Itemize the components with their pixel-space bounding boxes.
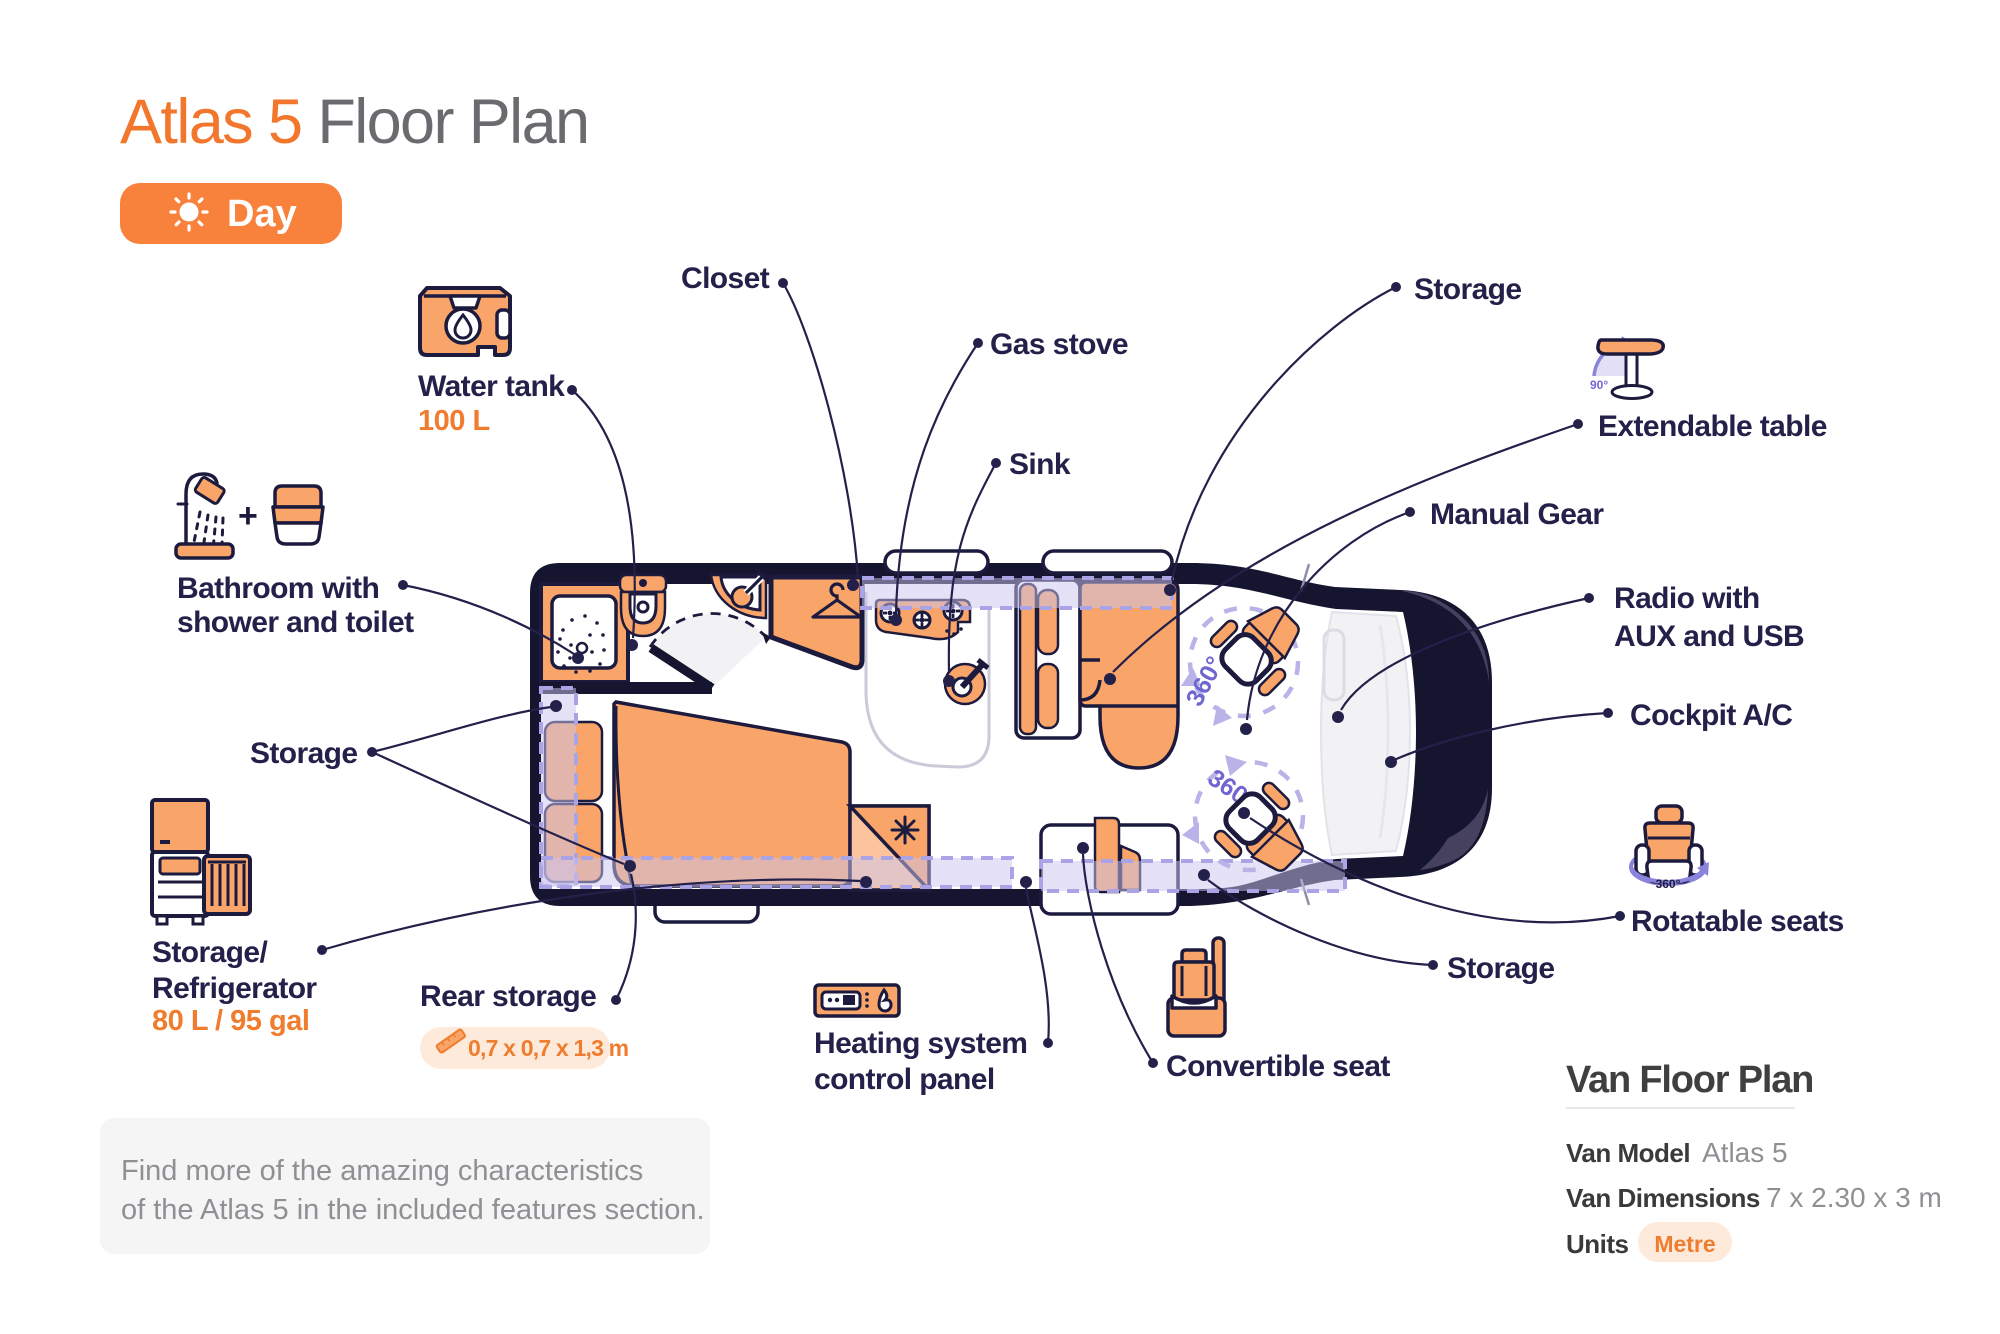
svg-text:Storage/: Storage/ bbox=[152, 936, 268, 969]
svg-text:Manual Gear: Manual Gear bbox=[1430, 498, 1604, 531]
svg-text:0,7 x 0,7 x 1,3 m: 0,7 x 0,7 x 1,3 m bbox=[468, 1035, 629, 1061]
svg-text:Van Model: Van Model bbox=[1566, 1138, 1690, 1168]
svg-text:360°: 360° bbox=[1656, 877, 1681, 891]
svg-text:Van Floor Plan: Van Floor Plan bbox=[1566, 1059, 1813, 1101]
svg-text:Atlas 5 Floor Plan: Atlas 5 Floor Plan bbox=[120, 87, 588, 157]
svg-text:Rotatable seats: Rotatable seats bbox=[1631, 905, 1844, 938]
svg-text:7 x 2.30 x 3 m: 7 x 2.30 x 3 m bbox=[1766, 1182, 1942, 1213]
svg-text:Bathroom with: Bathroom with bbox=[177, 572, 379, 605]
svg-text:Day: Day bbox=[227, 193, 297, 235]
svg-text:Metre: Metre bbox=[1654, 1231, 1715, 1257]
svg-text:Units: Units bbox=[1566, 1229, 1629, 1259]
svg-text:Radio with: Radio with bbox=[1614, 582, 1760, 615]
svg-text:Storage: Storage bbox=[1414, 273, 1522, 306]
svg-text:Van Dimensions: Van Dimensions bbox=[1566, 1183, 1760, 1213]
svg-text:80 L / 95 gal: 80 L / 95 gal bbox=[152, 1005, 309, 1037]
svg-text:90°: 90° bbox=[1590, 378, 1608, 392]
svg-text:100 L: 100 L bbox=[418, 405, 490, 437]
svg-text:Cockpit A/C: Cockpit A/C bbox=[1630, 699, 1792, 732]
svg-text:Closet: Closet bbox=[681, 262, 770, 295]
svg-text:Water tank: Water tank bbox=[418, 370, 565, 403]
svg-text:shower and toilet: shower and toilet bbox=[177, 606, 414, 639]
svg-text:Heating system: Heating system bbox=[814, 1027, 1027, 1060]
svg-text:Atlas 5: Atlas 5 bbox=[1702, 1137, 1788, 1168]
svg-text:+: + bbox=[238, 497, 258, 535]
svg-text:Find more of the amazing chara: Find more of the amazing characteristics bbox=[121, 1155, 643, 1187]
svg-text:Refrigerator: Refrigerator bbox=[152, 972, 317, 1005]
svg-text:Storage: Storage bbox=[250, 737, 358, 770]
svg-text:Extendable table: Extendable table bbox=[1598, 410, 1827, 443]
svg-text:of the Atlas 5 in the included: of the Atlas 5 in the included features … bbox=[121, 1194, 705, 1226]
svg-text:Sink: Sink bbox=[1009, 448, 1071, 481]
svg-text:AUX and USB: AUX and USB bbox=[1614, 620, 1804, 653]
svg-text:Storage: Storage bbox=[1447, 952, 1555, 985]
svg-text:control panel: control panel bbox=[814, 1063, 995, 1096]
svg-text:Gas stove: Gas stove bbox=[990, 328, 1128, 361]
svg-text:Rear storage: Rear storage bbox=[420, 980, 596, 1013]
svg-text:Convertible seat: Convertible seat bbox=[1166, 1050, 1390, 1083]
